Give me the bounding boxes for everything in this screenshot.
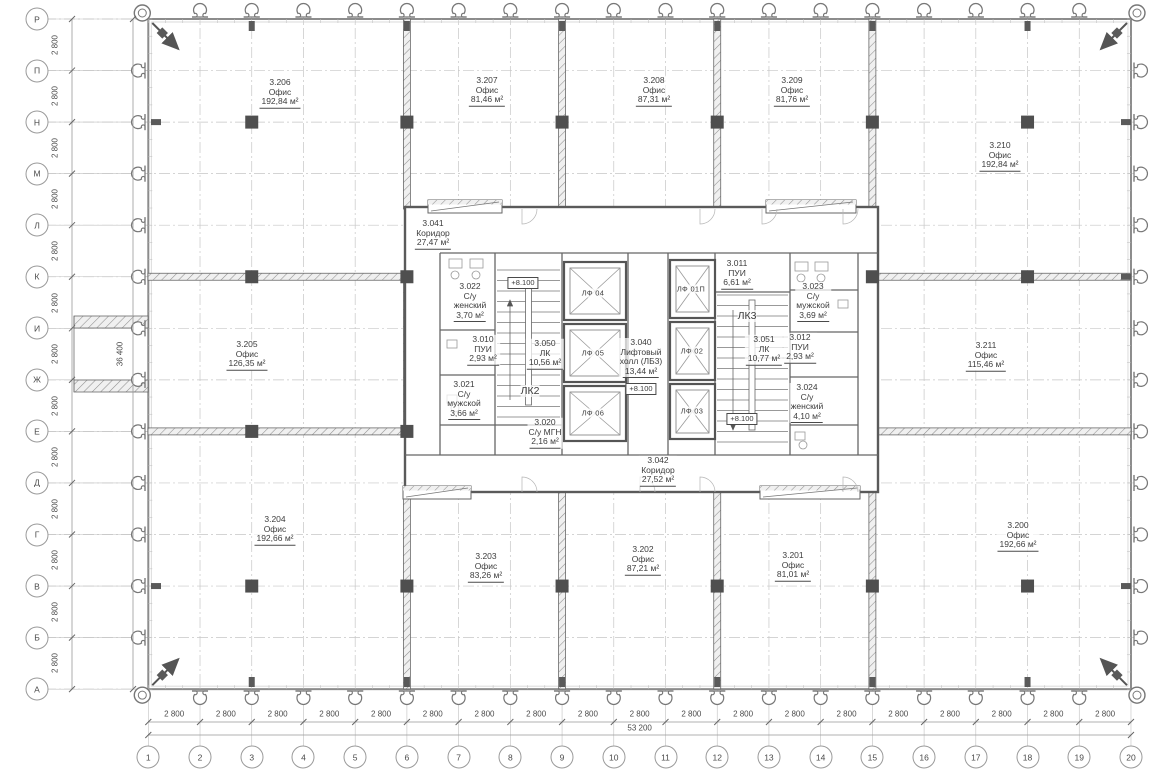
anchor-bolt [869,677,875,687]
facade-anchor-icon [606,4,622,17]
facade-anchor-icon [295,4,311,17]
facade-anchor-icon [132,217,145,233]
corner-anchor-arrow [152,23,178,49]
facade-anchor-icon [502,4,518,17]
facade-anchor-icon [1020,691,1036,704]
anchor-bolt [1025,21,1031,31]
anchor-bolt [1121,119,1131,125]
facade-anchor-icon [1071,691,1087,704]
facade-anchor-icon [132,269,145,285]
facade-anchor-icon [1134,114,1147,130]
anchor-bolt [151,119,161,125]
facade-anchor-icon [451,4,467,17]
facade-anchor-icon [502,691,518,704]
plan-drawing [0,0,1166,774]
column-marker [245,270,258,283]
facade-anchor-icon [295,691,311,704]
facade-anchor-icon [132,578,145,594]
corner-anchor-icon [131,2,154,25]
anchor-bolt [404,21,410,31]
corner-anchor-arrow [152,659,178,685]
interior-wall [869,19,876,209]
column-marker [245,580,258,593]
column-marker [400,580,413,593]
facade-anchor-icon [1134,527,1147,543]
facade-anchor-icon [132,63,145,79]
interior-wall [714,19,721,209]
anchor-bolt [559,21,565,31]
column-marker [1021,270,1034,283]
facade-anchor-icon [132,166,145,182]
column-marker [711,580,724,593]
facade-anchor-icon [1134,269,1147,285]
anchor-bolt [1121,274,1131,280]
facade-anchor-icon [709,4,725,17]
facade-anchor-icon [813,4,829,17]
column-marker [245,425,258,438]
vent-grille-hatch [766,200,856,205]
column-marker [866,270,879,283]
facade-anchor-icon [761,4,777,17]
column-marker [866,116,879,129]
anchor-bolt [1025,677,1031,687]
facade-anchor-icon [132,423,145,439]
anchor-bolt [249,677,255,687]
stair-stringer [749,300,755,430]
column-marker [400,425,413,438]
facade-anchor-icon [1134,63,1147,79]
facade-anchor-icon [1134,320,1147,336]
anchor-bolt [249,21,255,31]
facade-anchor-icon [864,691,880,704]
facade-anchor-icon [761,691,777,704]
facade-anchor-icon [709,691,725,704]
column-marker [556,116,569,129]
anchor-bolt [714,677,720,687]
facade-anchor-icon [192,4,208,17]
interior-wall [148,273,407,280]
anchor-bolt [714,21,720,31]
facade-anchor-icon [132,114,145,130]
interior-wall [148,428,443,435]
vent-grille-hatch [403,486,471,491]
facade-anchor-icon [916,691,932,704]
facade-anchor-icon [244,4,260,17]
facade-anchor-icon [347,4,363,17]
facade-anchor-icon [192,691,208,704]
interior-wall [872,273,1131,280]
facade-anchor-icon [347,691,363,704]
facade-anchor-icon [132,527,145,543]
facade-anchor-icon [399,4,415,17]
corner-anchor-arrow [1101,659,1127,685]
anchor-bolt [151,583,161,589]
facade-anchor-icon [1134,217,1147,233]
facade-anchor-icon [1134,166,1147,182]
facade-anchor-icon [1071,4,1087,17]
facade-anchor-icon [1134,578,1147,594]
facade-anchor-icon [813,691,829,704]
column-marker [711,116,724,129]
facade-anchor-icon [554,691,570,704]
facade-anchor-icon [968,691,984,704]
facade-anchor-icon [132,475,145,491]
facade-anchor-icon [1134,372,1147,388]
corner-anchor-icon [1126,684,1149,707]
anchor-bolt [1121,583,1131,589]
column-marker [866,580,879,593]
column-marker [1021,116,1034,129]
interior-wall [403,19,410,209]
vent-grille-hatch [760,486,860,491]
facade-anchor-icon [968,4,984,17]
facade-anchor-icon [606,691,622,704]
facade-anchor-icon [658,691,674,704]
facade-anchor-icon [1134,630,1147,646]
corner-anchor-icon [1126,2,1149,25]
corner-anchor-arrow [1101,23,1127,49]
facade-anchor-icon [864,4,880,17]
facade-anchor-icon [554,4,570,17]
anchor-bolt [404,677,410,687]
stair-stringer [526,280,532,405]
interior-wall [872,428,1131,435]
facade-anchor-icon [658,4,674,17]
floor-plan: 3.206Офис192,84 м²3.207Офис81,46 м²3.208… [0,0,1166,774]
vent-grille-hatch [428,200,502,205]
column-marker [1021,580,1034,593]
facade-anchor-icon [244,691,260,704]
anchor-bolt [559,677,565,687]
column-marker [400,270,413,283]
facade-anchor-icon [1134,475,1147,491]
facade-anchor-icon [1134,423,1147,439]
facade-anchor-icon [132,630,145,646]
facade-anchor-icon [1020,4,1036,17]
core-outline [405,207,878,492]
column-marker [556,580,569,593]
facade-anchor-icon [399,691,415,704]
column-marker [245,116,258,129]
interior-wall [559,19,566,209]
anchor-bolt [869,21,875,31]
facade-anchor-icon [916,4,932,17]
facade-anchor-icon [451,691,467,704]
column-marker [400,116,413,129]
